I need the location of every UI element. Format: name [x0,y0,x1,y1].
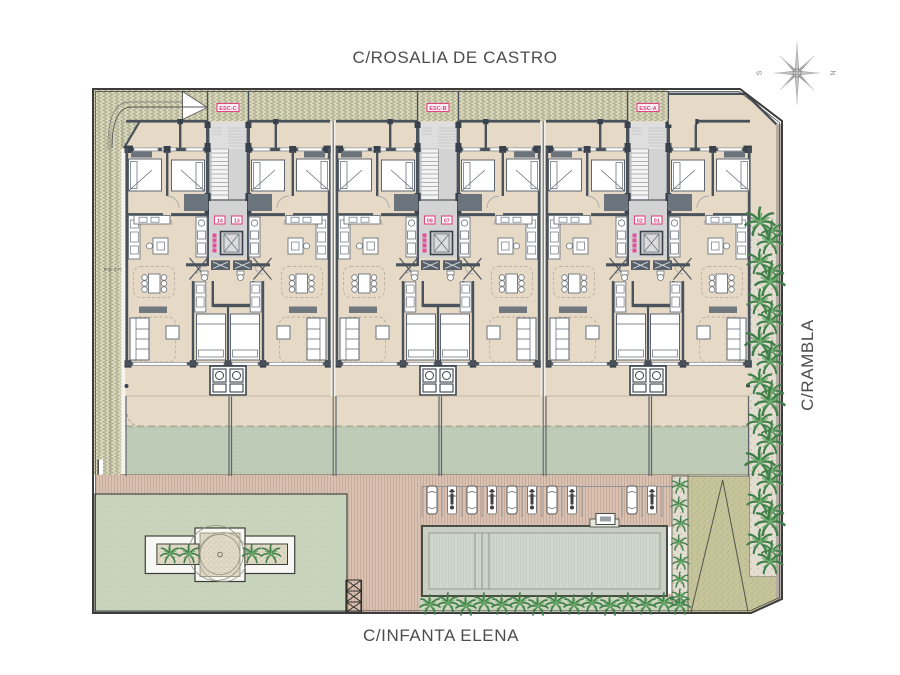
svg-text:C/INFANTA ELENA: C/INFANTA ELENA [363,626,519,645]
svg-text:ESC-A: ESC-A [639,106,656,112]
svg-text:ESC-C: ESC-C [219,106,236,112]
svg-text:C/RAMBLA: C/RAMBLA [798,319,817,411]
svg-text:02: 02 [637,218,643,224]
svg-text:07: 07 [444,218,450,224]
svg-text:14: 14 [217,218,224,224]
svg-text:01: 01 [654,218,660,224]
svg-text:ESC-B: ESC-B [429,106,446,112]
svg-text:N: N [831,70,838,75]
svg-text:13: 13 [234,218,240,224]
svg-text:08: 08 [427,218,433,224]
svg-text:S: S [757,70,764,75]
svg-text:P.O. 2.7%: P.O. 2.7% [104,267,124,272]
svg-text:C/ROSALIA DE CASTRO: C/ROSALIA DE CASTRO [352,48,557,67]
